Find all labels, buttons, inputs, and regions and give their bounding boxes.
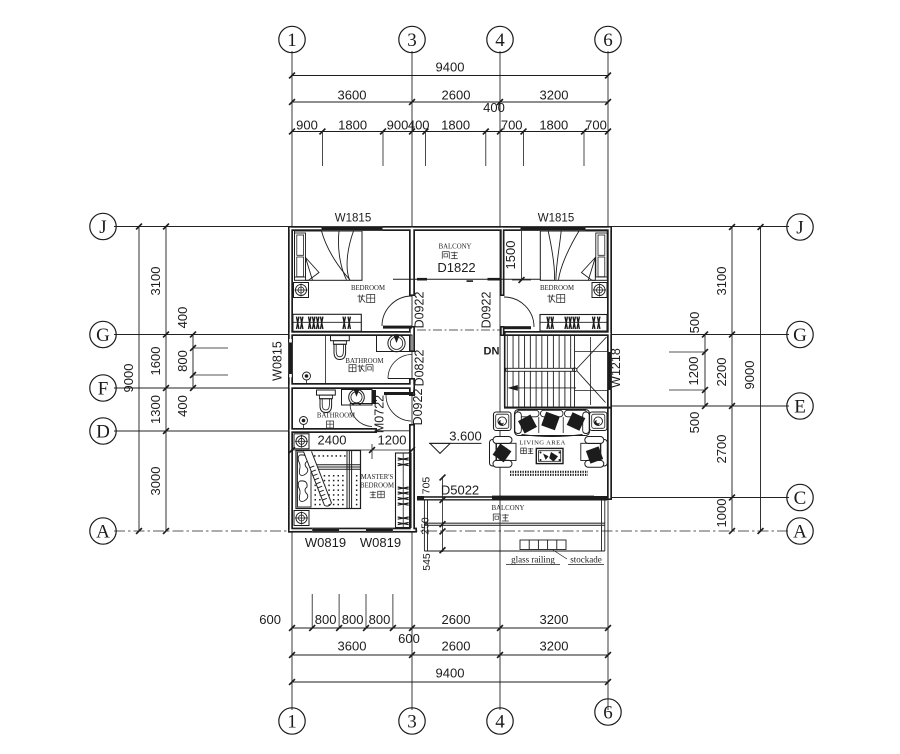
svg-text:BEDROOM: BEDROOM bbox=[351, 285, 385, 292]
svg-text:J: J bbox=[99, 217, 106, 238]
svg-text:W0819: W0819 bbox=[360, 535, 401, 550]
svg-text:1300: 1300 bbox=[148, 395, 163, 424]
svg-text:3: 3 bbox=[407, 712, 417, 733]
svg-text:D: D bbox=[96, 422, 110, 443]
svg-text:700: 700 bbox=[585, 117, 607, 132]
svg-text:6: 6 bbox=[603, 703, 613, 724]
svg-text:G: G bbox=[96, 325, 110, 346]
svg-text:3000: 3000 bbox=[148, 467, 163, 496]
svg-text:800: 800 bbox=[175, 350, 190, 372]
svg-text:2700: 2700 bbox=[714, 435, 729, 464]
svg-text:900: 900 bbox=[296, 117, 318, 132]
svg-text:BALCONY: BALCONY bbox=[492, 505, 525, 512]
svg-text:1500: 1500 bbox=[503, 241, 518, 270]
svg-text:W1815: W1815 bbox=[538, 213, 574, 225]
svg-text:D1822: D1822 bbox=[437, 260, 475, 275]
svg-text:9400: 9400 bbox=[436, 60, 465, 75]
svg-text:600: 600 bbox=[398, 631, 420, 646]
svg-text:900: 900 bbox=[387, 117, 409, 132]
svg-text:6: 6 bbox=[603, 30, 613, 51]
svg-text:3100: 3100 bbox=[148, 267, 163, 296]
svg-text:D5022: D5022 bbox=[441, 483, 479, 498]
svg-text:BEDROOM: BEDROOM bbox=[360, 483, 394, 490]
svg-text:1: 1 bbox=[287, 30, 297, 51]
svg-text:glass railing: glass railing bbox=[511, 555, 555, 565]
svg-text:MASTER'S: MASTER'S bbox=[361, 474, 394, 481]
svg-text:3.600: 3.600 bbox=[449, 429, 482, 444]
svg-text:2600: 2600 bbox=[442, 639, 471, 654]
svg-text:W1218: W1218 bbox=[609, 348, 623, 388]
svg-text:1600: 1600 bbox=[148, 347, 163, 376]
svg-text:F: F bbox=[98, 379, 109, 400]
svg-text:9000: 9000 bbox=[121, 364, 136, 393]
svg-text:1800: 1800 bbox=[441, 117, 470, 132]
svg-text:3200: 3200 bbox=[540, 87, 569, 102]
svg-text:stockade: stockade bbox=[570, 555, 602, 565]
svg-text:2600: 2600 bbox=[442, 612, 471, 627]
svg-text:3600: 3600 bbox=[338, 87, 367, 102]
svg-text:BEDROOM: BEDROOM bbox=[540, 285, 574, 292]
svg-text:M0722: M0722 bbox=[373, 395, 387, 433]
svg-text:545: 545 bbox=[421, 553, 433, 571]
svg-text:BATHROOM: BATHROOM bbox=[345, 358, 383, 365]
svg-text:700: 700 bbox=[501, 117, 523, 132]
svg-text:1: 1 bbox=[287, 712, 297, 733]
svg-text:500: 500 bbox=[687, 312, 702, 334]
svg-text:W0815: W0815 bbox=[271, 341, 285, 381]
svg-text:1200: 1200 bbox=[378, 433, 407, 448]
svg-text:D0822: D0822 bbox=[413, 350, 427, 387]
svg-text:4: 4 bbox=[495, 30, 505, 51]
svg-text:400: 400 bbox=[483, 100, 505, 115]
svg-text:500: 500 bbox=[687, 412, 702, 434]
svg-text:3200: 3200 bbox=[540, 639, 569, 654]
svg-text:W0819: W0819 bbox=[305, 535, 346, 550]
svg-text:A: A bbox=[96, 522, 110, 543]
svg-text:4: 4 bbox=[495, 712, 505, 733]
svg-text:2600: 2600 bbox=[442, 87, 471, 102]
svg-text:3: 3 bbox=[407, 30, 417, 51]
svg-text:E: E bbox=[794, 397, 806, 418]
svg-text:1200: 1200 bbox=[686, 357, 701, 386]
svg-text:BALCONY: BALCONY bbox=[439, 244, 472, 251]
svg-text:600: 600 bbox=[259, 612, 281, 627]
svg-text:3600: 3600 bbox=[338, 639, 367, 654]
svg-text:LIVING AREA: LIVING AREA bbox=[519, 440, 565, 447]
svg-text:DN: DN bbox=[484, 346, 500, 358]
svg-text:1800: 1800 bbox=[338, 117, 367, 132]
svg-text:800: 800 bbox=[315, 612, 337, 627]
svg-text:800: 800 bbox=[342, 612, 364, 627]
svg-text:1800: 1800 bbox=[539, 117, 568, 132]
svg-text:1000: 1000 bbox=[714, 499, 729, 528]
svg-text:400: 400 bbox=[175, 395, 190, 417]
svg-text:2200: 2200 bbox=[714, 358, 729, 387]
svg-text:W1815: W1815 bbox=[335, 213, 371, 225]
svg-text:800: 800 bbox=[369, 612, 391, 627]
svg-text:G: G bbox=[793, 325, 807, 346]
svg-text:C: C bbox=[794, 488, 807, 509]
svg-text:9400: 9400 bbox=[436, 666, 465, 681]
svg-text:D0922: D0922 bbox=[411, 389, 425, 426]
svg-text:250: 250 bbox=[420, 517, 432, 535]
svg-text:D0922: D0922 bbox=[413, 292, 427, 329]
svg-text:2400: 2400 bbox=[318, 433, 347, 448]
svg-text:BATHROOM: BATHROOM bbox=[317, 413, 355, 420]
svg-text:3100: 3100 bbox=[714, 267, 729, 296]
svg-text:A: A bbox=[793, 522, 807, 543]
svg-text:J: J bbox=[796, 218, 803, 239]
svg-text:705: 705 bbox=[421, 477, 433, 495]
svg-text:400: 400 bbox=[175, 307, 190, 329]
svg-text:3200: 3200 bbox=[540, 612, 569, 627]
svg-text:D0922: D0922 bbox=[480, 292, 494, 329]
svg-text:9000: 9000 bbox=[742, 361, 757, 390]
svg-text:400: 400 bbox=[408, 117, 430, 132]
